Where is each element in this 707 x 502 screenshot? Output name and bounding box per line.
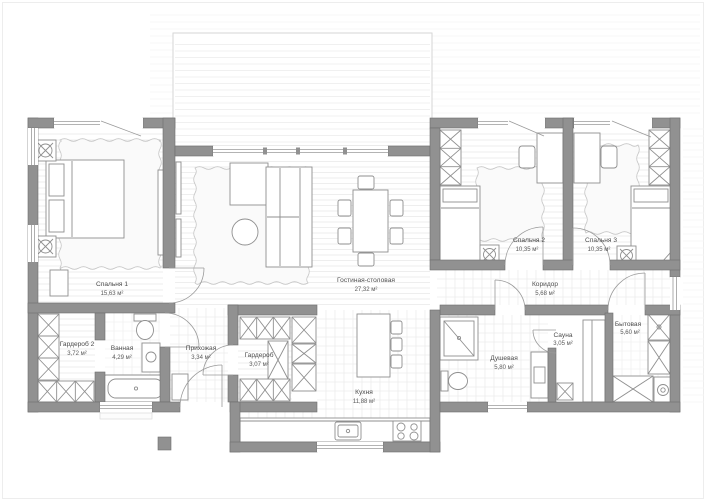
room-label-kitchen: Кухня — [355, 389, 373, 396]
rug-bedroom-2 — [476, 167, 545, 242]
wardrobe — [38, 381, 94, 402]
wardrobe — [649, 130, 670, 185]
sink-vanity — [142, 343, 160, 372]
room-label-living: Гостиная-столовая — [337, 277, 395, 284]
cabinet — [268, 341, 288, 379]
floor-plan: Спальня 1 15,63 м² Гостиная-столовая 27,… — [0, 0, 707, 502]
window — [574, 118, 610, 128]
room-label-garderob: Гардероб — [244, 351, 273, 359]
bathtub — [104, 375, 167, 402]
window — [478, 118, 508, 128]
window — [28, 128, 38, 165]
kitchen-island — [357, 314, 390, 377]
wardrobe — [38, 314, 59, 380]
chair — [519, 146, 535, 168]
room-area-bedroom-1: 15,63 м² — [101, 291, 124, 297]
porch-pillar — [158, 437, 171, 450]
room-area-kitchen: 11,88 м² — [353, 399, 375, 405]
wardrobe — [240, 317, 290, 339]
sauna-bench — [583, 320, 605, 402]
shower-tray — [440, 317, 478, 360]
sink-vanity — [531, 352, 548, 398]
chair — [601, 146, 617, 168]
window — [100, 402, 152, 412]
room-label-hallway: Прихожая — [186, 345, 217, 352]
room-label-corridor: Коридор — [532, 281, 558, 288]
washing-machine — [654, 377, 672, 402]
window — [54, 118, 100, 128]
terrace — [173, 33, 432, 146]
kitchen-sink — [335, 422, 361, 440]
pillow — [443, 189, 477, 202]
room-label-bedroom-3: Спальня 3 — [585, 237, 617, 244]
room-label-bedroom-1: Спальня 1 — [96, 281, 128, 288]
toilet — [441, 371, 468, 391]
room-area-garderob: 3,07 м² — [249, 362, 268, 368]
room-area-garderob-2: 3,72 м² — [67, 351, 86, 357]
room-area-bedroom-2: 10,35 м² — [516, 247, 539, 253]
cabinet — [648, 341, 670, 374]
desk — [537, 133, 563, 183]
window — [670, 277, 680, 310]
window — [317, 442, 383, 452]
room-area-bedroom-3: 10,35 м² — [588, 247, 611, 253]
exterior-step — [100, 413, 152, 419]
window — [488, 402, 527, 412]
room-area-living: 27,32 м² — [355, 287, 378, 293]
kitchen-cabinets — [292, 317, 316, 391]
room-label-sauna: Сауна — [553, 332, 572, 339]
boiler-cabinet — [648, 314, 670, 340]
wardrobe — [240, 379, 290, 401]
room-label-bedroom-2: Спальня 2 — [513, 237, 545, 244]
pillow — [49, 164, 64, 196]
room-area-utility: 5,60 м² — [620, 330, 639, 336]
stool — [391, 338, 402, 351]
tv-console — [176, 219, 181, 257]
dining-table — [353, 190, 388, 252]
pillow — [634, 189, 668, 202]
hallway-cabinet — [172, 374, 188, 400]
window — [28, 225, 38, 262]
pillow — [49, 200, 64, 232]
cabinet — [613, 376, 653, 402]
tv-console — [176, 162, 181, 214]
sliding-glass-door — [213, 146, 388, 156]
wardrobe — [440, 130, 461, 185]
bench — [50, 270, 68, 296]
room-area-hallway: 3,34 м² — [191, 355, 210, 361]
sofa-chaise — [230, 163, 268, 205]
desk — [574, 133, 600, 183]
coffee-table — [232, 219, 258, 245]
sauna-heater — [557, 383, 573, 400]
stool — [391, 355, 402, 368]
room-area-corridor: 5,68 м² — [535, 291, 554, 297]
room-label-utility: Бытовая — [615, 321, 642, 328]
room-area-shower: 5,80 м² — [494, 365, 513, 371]
room-label-garderob-2: Гардероб 2 — [60, 340, 95, 348]
stool — [391, 321, 402, 334]
stove — [393, 421, 421, 441]
room-area-bathroom: 4,29 м² — [112, 355, 131, 361]
room-label-shower: Душевая — [490, 355, 518, 362]
room-label-bathroom: Ванная — [111, 345, 134, 352]
room-area-sauna: 3,05 м² — [553, 341, 572, 347]
